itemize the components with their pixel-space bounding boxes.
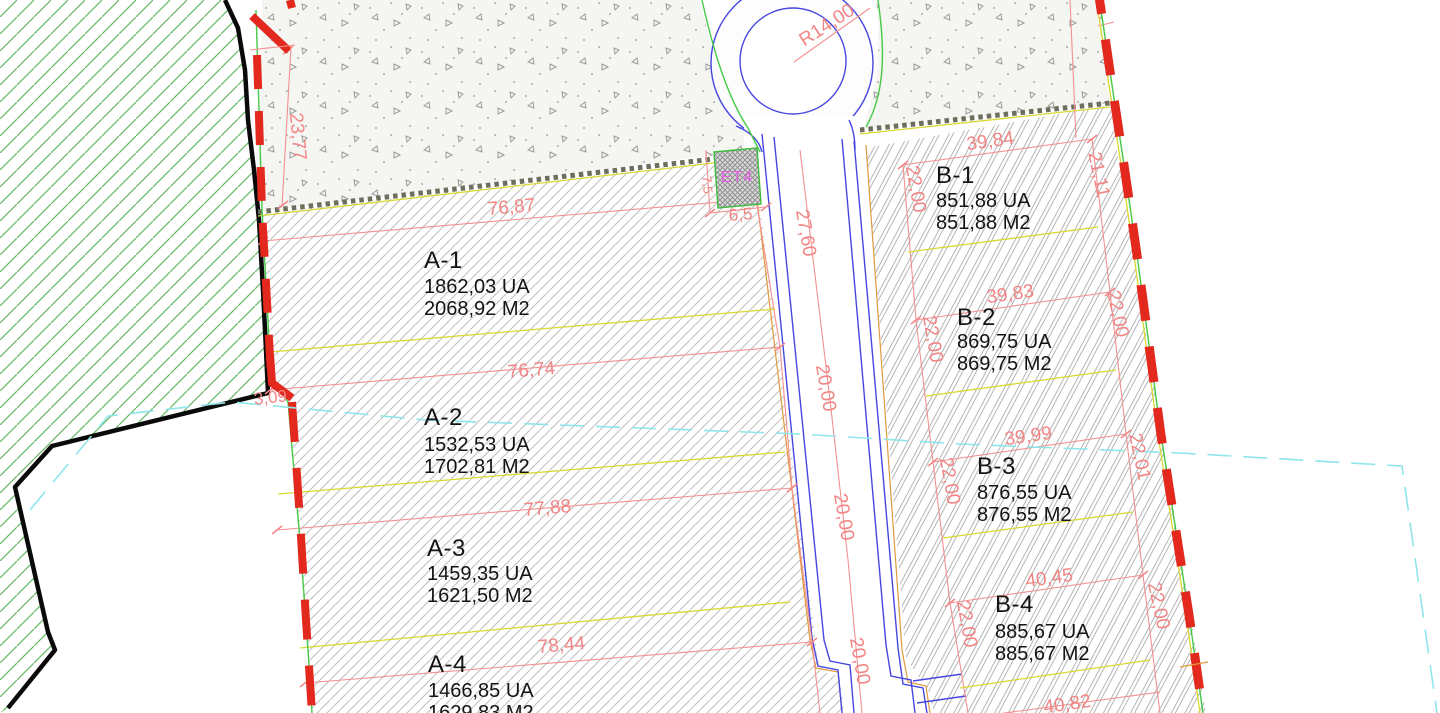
parcel-b4-name: B-4: [995, 591, 1034, 618]
parcel-a1-area-m2: 2068,92 M2: [424, 298, 530, 320]
parcel-a4-area-ua: 1466,85 UA: [428, 680, 534, 702]
dim-a4-width: 78,44: [537, 633, 587, 658]
site-plan-canvas: ET4 R14,00 23,77 76,87 76,74 77,88 78,44…: [0, 0, 1440, 713]
parcel-b2-name: B-2: [957, 304, 996, 331]
dim-a3-width: 77,88: [523, 496, 572, 521]
parcel-b4-area-m2: 885,67 M2: [995, 643, 1090, 665]
parcel-a2-name: A-2: [424, 404, 463, 431]
parcel-a4-name: A-4: [428, 651, 467, 678]
parcel-b3-name: B-3: [977, 453, 1016, 480]
dim-a2-width: 76,74: [507, 358, 557, 383]
parcel-b2-area-ua: 869,75 UA: [957, 331, 1052, 353]
parcel-a1-area-ua: 1862,03 UA: [424, 276, 530, 298]
parcel-a3-name: A-3: [427, 535, 466, 562]
parcel-a2-area-ua: 1532,53 UA: [424, 434, 530, 456]
parcel-b1-area-m2: 851,88 M2: [936, 212, 1031, 234]
parcel-b1-name: B-1: [936, 162, 975, 189]
dim-left-length: 23,77: [285, 112, 310, 161]
parcel-b3-area-m2: 876,55 M2: [977, 504, 1072, 526]
cad-site-plan: ET4 R14,00 23,77 76,87 76,74 77,88 78,44…: [0, 0, 1440, 713]
dim-transformer-width: 6,5: [728, 204, 753, 225]
parcel-a4-area-m2: 1629,83 M2: [428, 702, 534, 713]
parcel-b4-area-ua: 885,67 UA: [995, 621, 1090, 643]
dim-a1-width: 76,87: [487, 195, 536, 220]
parcel-b2-area-m2: 869,75 M2: [957, 353, 1052, 375]
parcel-b3-area-ua: 876,55 UA: [977, 482, 1072, 504]
parcel-b1-area-ua: 851,88 UA: [936, 190, 1031, 212]
parcel-a3-area-ua: 1459,35 UA: [427, 563, 533, 585]
dim-transformer-depth: 7,5: [699, 175, 716, 194]
parcel-a3-area-m2: 1621,50 M2: [427, 585, 533, 607]
dim-offset: 3,09: [253, 386, 288, 408]
parcel-a2-area-m2: 1702,81 M2: [424, 456, 530, 478]
transformer-label: ET4: [721, 169, 753, 186]
parcels-a-hatch: [262, 157, 844, 713]
parcel-a1-name: A-1: [424, 247, 463, 274]
